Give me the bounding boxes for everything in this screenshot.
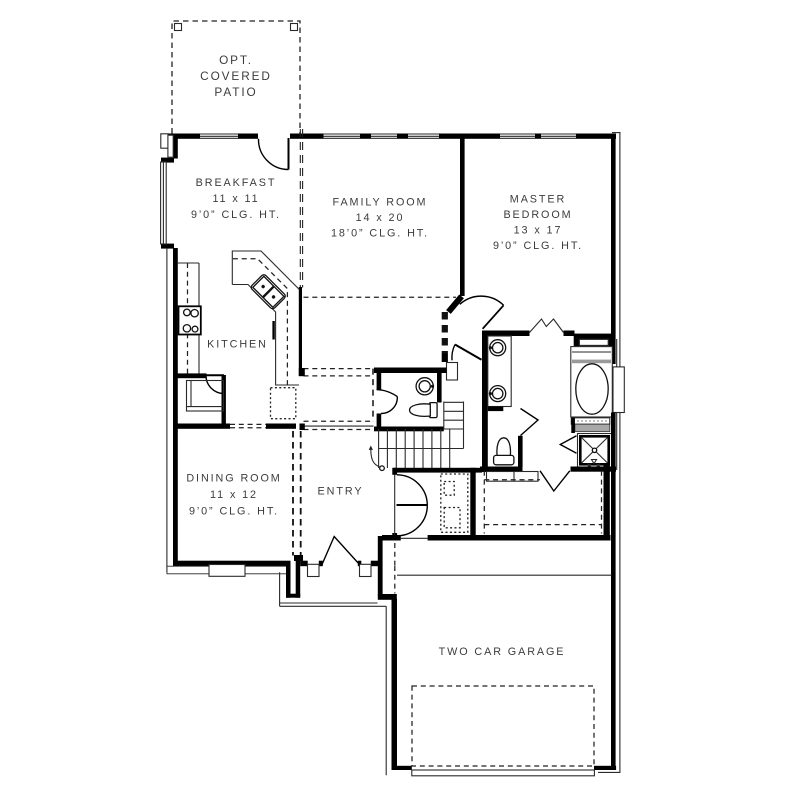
svg-text:BREAKFAST: BREAKFAST xyxy=(196,177,277,189)
svg-text:13 x 17: 13 x 17 xyxy=(514,225,563,237)
svg-text:ENTRY: ENTRY xyxy=(318,486,364,498)
svg-text:14 x 20: 14 x 20 xyxy=(356,212,405,224)
svg-text:TWO CAR GARAGE: TWO CAR GARAGE xyxy=(439,646,566,658)
svg-text:FAMILY ROOM: FAMILY ROOM xyxy=(333,197,428,209)
svg-text:PATIO: PATIO xyxy=(214,85,257,99)
svg-text:COVERED: COVERED xyxy=(200,69,272,83)
svg-text:18’0” CLG. HT.: 18’0” CLG. HT. xyxy=(331,228,429,240)
svg-text:9’0” CLG. HT.: 9’0” CLG. HT. xyxy=(189,506,279,518)
svg-text:OPT.: OPT. xyxy=(219,53,253,67)
svg-text:BEDROOM: BEDROOM xyxy=(503,209,572,221)
svg-text:DINING ROOM: DINING ROOM xyxy=(186,473,281,485)
svg-text:11 x 12: 11 x 12 xyxy=(210,489,258,501)
svg-text:MASTER: MASTER xyxy=(510,194,566,206)
svg-text:11 x 11: 11 x 11 xyxy=(212,193,259,205)
svg-text:9’0” CLG. HT.: 9’0” CLG. HT. xyxy=(493,240,583,252)
svg-text:9’0” CLG. HT.: 9’0” CLG. HT. xyxy=(191,209,281,221)
svg-text:KITCHEN: KITCHEN xyxy=(207,339,268,351)
